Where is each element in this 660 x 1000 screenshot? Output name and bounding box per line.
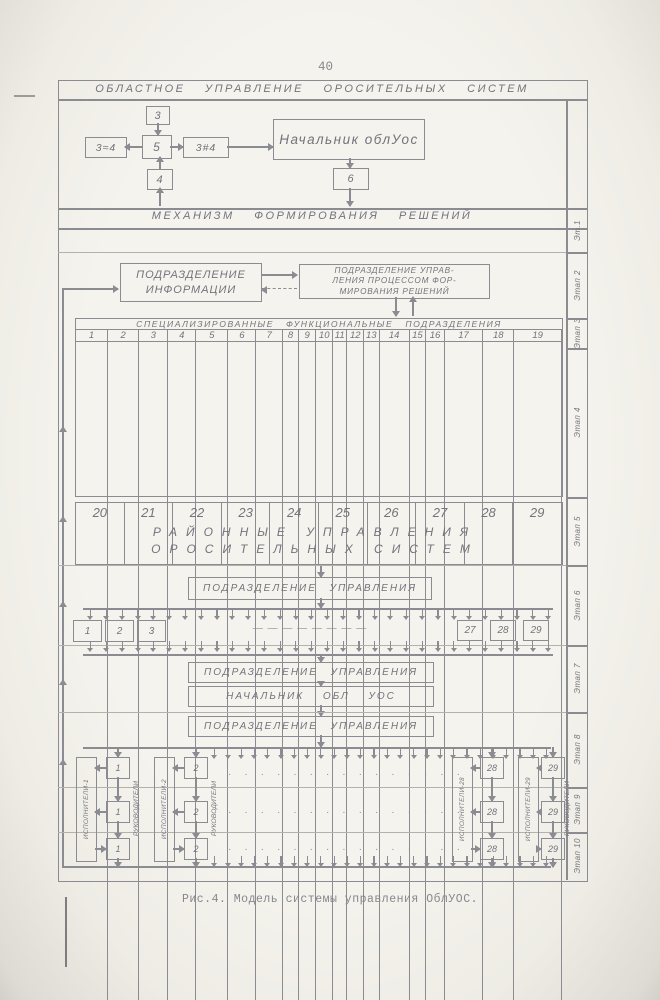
rail-arrow [241, 856, 242, 866]
rail-stage6-bottom [83, 654, 553, 656]
rail-arrow [358, 609, 359, 619]
arrow-leader-chain [552, 821, 554, 838]
rail-arrow [153, 609, 154, 619]
rail-arrow [267, 748, 268, 758]
rail-arrow [169, 609, 170, 619]
rail-arrow [90, 609, 91, 619]
rail-arrow [232, 609, 233, 619]
leader-box-2: 2 [184, 757, 208, 779]
spec-units-table: СПЕЦИАЛИЗИРОВАННЫЕ ФУНКЦИОНАЛЬНЫЕ ПОДРАЗ… [75, 318, 563, 497]
stage-segment-2: Этап 2 [566, 252, 588, 318]
stage-segment-7: Этап 7 [566, 645, 588, 712]
stage-segment-5: Этап 5 [566, 497, 588, 565]
leaders-label: РУКОВОДИТЕЛИ [209, 757, 219, 860]
leaders-label-text: РУКОВОДИТЕЛИ [133, 781, 140, 836]
arrow-mechanism-to-4 [159, 188, 161, 206]
rail-arrow [267, 856, 268, 866]
stage-strip-divider [566, 252, 588, 254]
rail-arrow [201, 609, 202, 619]
rail-arrow [406, 609, 407, 619]
leader-box-28: 28 [480, 801, 504, 823]
arrow-chief-to-6 [349, 158, 351, 168]
rail-arrow [400, 856, 401, 866]
leader-box-28: 28 [480, 757, 504, 779]
scanned-page: 40 ОБЛАСТНОЕ УПРАВЛЕНИЕ ОРОСИТЕЛЬНЫХ СИС… [0, 0, 660, 1000]
rail-arrow [413, 748, 414, 758]
rail-arrow [374, 641, 375, 651]
executors-box-label: ИСПОЛНИТЕЛИ-29 [525, 777, 532, 841]
rail-arrow [390, 609, 391, 619]
rail-arrow [422, 641, 423, 651]
information-unit-box: ПОДРАЗДЕЛЕНИЕ ИНФОРМАЦИИ [120, 263, 262, 302]
arrow-leader-to-executors [95, 767, 106, 769]
spec-col-number: 19 [514, 330, 562, 341]
stage-label-5: Этап 5 [573, 516, 582, 547]
ellipsis-dots: ··············· [228, 807, 446, 818]
scan-artifact-ink-line [65, 897, 67, 967]
spec-col-number: 6 [228, 330, 256, 341]
feedback-arrowhead [62, 760, 64, 769]
rail-arrow [311, 609, 312, 619]
rail-arrow [307, 748, 308, 758]
arrow-district-to-control6 [320, 565, 322, 577]
control-unit-box-stage8: ПОДРАЗДЕЛЕНИЕ УПРАВЛЕНИЯ [188, 716, 434, 737]
leader-box-1: 1 [106, 838, 130, 860]
rail-arrow [295, 641, 296, 651]
rail-arrow [334, 748, 335, 758]
arrow-chief-to-control8 [320, 705, 322, 716]
control-unit-box-stage6: ПОДРАЗДЕЛЕНИЕ УПРАВЛЕНИЯ [188, 577, 432, 600]
spec-col-number: 3 [139, 330, 168, 341]
rail-arrow [532, 641, 533, 651]
rail-arrow [248, 641, 249, 651]
arrow-info-to-process [262, 274, 297, 276]
rail-arrow [169, 641, 170, 651]
arrow-executors-to-leader [95, 848, 106, 850]
rail-executors-top [83, 747, 551, 749]
rail-arrow [532, 609, 533, 619]
unit-box-1: 1 [73, 620, 102, 642]
spec-col-number: 5 [196, 330, 228, 341]
stage-strip-divider [566, 645, 588, 647]
stage-label-9: Этап 9 [573, 794, 582, 825]
spec-col-number: 1 [76, 330, 108, 341]
ellipsis-dots: ··············· [228, 844, 446, 855]
arrow-3noteq4-to-chief [227, 146, 273, 148]
rail-arrow [185, 641, 186, 651]
arrow-executors-to-leader [173, 848, 184, 850]
stage-strip-divider [566, 348, 588, 350]
stage-boundary-line [58, 252, 566, 253]
arrow-leader-to-executors [537, 767, 541, 769]
district-line1: РАЙОННЫЕ УПРАВЛЕНИЯ [80, 525, 550, 539]
arrow-leader-to-executors [537, 811, 541, 813]
spec-col-number: 18 [483, 330, 514, 341]
executors-box-label: ИСПОЛНИТЕЛИ-1 [83, 779, 90, 839]
arrow-leader-to-rail [552, 858, 554, 867]
rail-arrow [254, 856, 255, 866]
spec-col-number: 10 [316, 330, 333, 341]
leader-box-2: 2 [184, 801, 208, 823]
arrow-leader-chain [195, 777, 197, 801]
leaders-label-text: РУКОВОДИТЕЛИ [211, 781, 218, 836]
rail-arrow [90, 641, 91, 651]
rail-arrow [360, 748, 361, 758]
rail-arrow [137, 609, 138, 619]
scan-artifact-dash [14, 95, 35, 97]
unit-box-29: 29 [523, 620, 549, 641]
arrow-5-to-3approx4 [125, 146, 142, 148]
spec-col-number: 13 [364, 330, 380, 341]
rail-arrow [390, 641, 391, 651]
rail-arrow [227, 856, 228, 866]
rail-arrow [311, 641, 312, 651]
header-band-underline [58, 99, 588, 101]
feedback-arrowhead [62, 427, 64, 436]
arrow-4-to-5 [159, 157, 161, 169]
arrow-leader-to-executors [173, 811, 184, 813]
unit-box-2: 2 [105, 620, 134, 642]
rail-arrow [295, 609, 296, 619]
rail-arrow [264, 609, 265, 619]
rail-arrow [320, 856, 321, 866]
process-control-unit-box: ПОДРАЗДЕЛЕНИЕ УПРАВ- ЛЕНИЯ ПРОЦЕССОМ ФОР… [299, 264, 490, 299]
process-unit-line1: ПОДРАЗДЕЛЕНИЕ УПРАВ- [335, 266, 455, 276]
arrow-spec-to-process [412, 297, 414, 316]
arrow-feedback-to-info [62, 288, 118, 290]
arrow-leader-chain [195, 821, 197, 838]
rail-arrow [334, 856, 335, 866]
ellipsis-dots: ··············· [228, 769, 446, 780]
feedback-arrowhead [62, 517, 64, 526]
rail-arrow [440, 748, 441, 758]
information-unit-line1: ПОДРАЗДЕЛЕНИЕ [136, 268, 246, 282]
arrow-rail-to-control7 [320, 654, 322, 662]
spec-col-number: 11 [333, 330, 347, 341]
rail-arrow [216, 641, 217, 651]
rail-arrow [440, 856, 441, 866]
rail-arrow [280, 856, 281, 866]
rail-arrow [307, 856, 308, 866]
rail-arrow [343, 641, 344, 651]
spec-col-number: 17 [445, 330, 483, 341]
flow-box-3-noteq-4: 3#4 [183, 137, 229, 158]
stage-strip-divider [566, 565, 588, 567]
spec-col-number: 7 [256, 330, 283, 341]
rail-arrow [400, 748, 401, 758]
spec-col-number: 14 [380, 330, 410, 341]
rail-arrow [280, 609, 281, 619]
arrow-6-to-mechanism [349, 188, 351, 206]
rail-arrow [264, 641, 265, 651]
rail-arrow [294, 856, 295, 866]
rail-arrow [347, 748, 348, 758]
header-band-title: ОБЛАСТНОЕ УПРАВЛЕНИЕ ОРОСИТЕЛЬНЫХ СИСТЕМ [58, 83, 566, 95]
rail-arrow [227, 748, 228, 758]
mechanism-band-title: МЕХАНИЗМ ФОРМИРОВАНИЯ РЕШЕНИЙ [58, 210, 566, 222]
stage-boundary-line [58, 565, 566, 566]
stage-segment-1: Эт.1 [566, 208, 588, 252]
arrow-leader-to-rail [195, 858, 197, 867]
rail-arrow [387, 748, 388, 758]
arrow-rail-to-leader [117, 747, 119, 757]
rail-arrow [485, 609, 486, 619]
arrow-rail-to-leader [552, 747, 554, 757]
leaders-label: РУКОВОДИТЕЛИ [562, 757, 572, 860]
rail-arrow [501, 609, 502, 619]
stage-label-2: Этап 2 [573, 270, 582, 301]
page-number: 40 [318, 60, 333, 74]
arrow-rail-to-leader [195, 747, 197, 757]
rail-arrow [426, 856, 427, 866]
spec-col-number: 4 [168, 330, 196, 341]
rail-arrow [122, 609, 123, 619]
rail-arrow [122, 641, 123, 651]
executors-box-label: ИСПОЛНИТЕЛИ-2 [161, 779, 168, 839]
unit-box-27: 27 [457, 620, 483, 641]
district-line2: ОРОСИТЕЛЬНЫХ СИСТЕМ [80, 542, 550, 556]
stage-label-10: Этап 10 [573, 838, 582, 874]
leader-box-1: 1 [106, 757, 130, 779]
arrow-leader-chain [491, 777, 493, 801]
rail-arrow [548, 641, 549, 651]
rail-arrow [106, 609, 107, 619]
rail-arrow [280, 748, 281, 758]
arrow-leader-to-executors [173, 767, 184, 769]
arrow-control8-to-executors [320, 735, 322, 747]
mechanism-band-bottom [58, 228, 588, 230]
arrow-5-to-3noteq4 [170, 146, 183, 148]
rail-arrow [254, 748, 255, 758]
rail-arrow [106, 641, 107, 651]
process-unit-line2: ЛЕНИЯ ПРОЦЕССОМ ФОР- [332, 276, 456, 286]
leaders-label-text: РУКОВОДИТЕЛИ [564, 781, 571, 836]
spec-col-number: 9 [299, 330, 317, 341]
rail-arrow [387, 856, 388, 866]
stage-label-7: Этап 7 [573, 663, 582, 694]
spec-col-number: 12 [347, 330, 364, 341]
rail-arrow [485, 641, 486, 651]
stage-label-4: Этап 4 [573, 407, 582, 438]
stage-boundary-line [58, 712, 566, 713]
control-unit-box-stage7: ПОДРАЗДЕЛЕНИЕ УПРАВЛЕНИЯ [188, 662, 434, 683]
dashed-arrow-process-to-info [262, 288, 297, 289]
stage-label-1: Эт.1 [573, 220, 582, 241]
process-unit-line3: МИРОВАНИЯ РЕШЕНИЙ [340, 287, 450, 297]
rail-arrow [185, 609, 186, 619]
arrow-leader-chain [491, 821, 493, 838]
leader-box-28: 28 [480, 838, 504, 860]
arrow-control6-to-rail [320, 598, 322, 608]
rail-arrow [453, 641, 454, 651]
rail-arrow [327, 641, 328, 651]
rail-arrow [201, 641, 202, 651]
rail-arrow [241, 748, 242, 758]
rail-arrow [320, 748, 321, 758]
figure-caption: Рис.4. Модель системы управления ОблУОС. [0, 893, 660, 906]
stage-segment-4: Этап 4 [566, 348, 588, 497]
rail-arrow [406, 641, 407, 651]
rail-arrow [413, 856, 414, 866]
arrow-3-to-5 [157, 123, 159, 135]
arrow-leader-chain [117, 777, 119, 801]
stage6-ellipsis-dashes: — — — — — — — — [170, 623, 450, 634]
feedback-line [62, 288, 64, 868]
arrow-process-to-spec [395, 297, 397, 316]
arrow-leader-chain [552, 777, 554, 801]
unit-box-3: 3 [137, 620, 166, 642]
rail-arrow [548, 609, 549, 619]
information-unit-line2: ИНФОРМАЦИИ [146, 283, 237, 297]
spec-col-number: 16 [426, 330, 445, 341]
rail-arrow [137, 641, 138, 651]
stage-segment-3: Этап 3 [566, 318, 588, 348]
unit-box-28: 28 [490, 620, 516, 641]
rail-arrow [294, 748, 295, 758]
rail-arrow [453, 609, 454, 619]
spec-col-number: 2 [108, 330, 139, 341]
rail-arrow [360, 856, 361, 866]
chief-box-stage7: НАЧАЛЬНИК ОБЛ УОС [188, 686, 434, 707]
rail-arrow [373, 748, 374, 758]
rail-arrow [506, 856, 507, 866]
rail-arrow [506, 748, 507, 758]
arrow-executors-to-leader [537, 848, 541, 850]
arrow-leader-chain [117, 821, 119, 838]
stage-label-6: Этап 6 [573, 590, 582, 621]
feedback-arrowhead [62, 680, 64, 689]
leader-box-1: 1 [106, 801, 130, 823]
rail-arrow [373, 856, 374, 866]
spec-col-number: 8 [283, 330, 299, 341]
spec-table-title: СПЕЦИАЛИЗИРОВАННЫЕ ФУНКЦИОНАЛЬНЫЕ ПОДРАЗ… [76, 319, 562, 330]
rail-arrow [469, 609, 470, 619]
rail-arrow [280, 641, 281, 651]
rail-arrow [516, 609, 517, 619]
feedback-arrowhead [62, 602, 64, 611]
rail-arrow [327, 609, 328, 619]
arrow-leader-to-executors [95, 811, 106, 813]
rail-arrow [437, 641, 438, 651]
leader-box-2: 2 [184, 838, 208, 860]
rail-arrow [501, 641, 502, 651]
rail-arrow [232, 641, 233, 651]
rail-arrow [426, 748, 427, 758]
rail-arrow [469, 641, 470, 651]
stage-strip-divider [566, 497, 588, 499]
stage-label-8: Этап 8 [573, 734, 582, 765]
rail-arrow [343, 609, 344, 619]
rail-arrow [153, 641, 154, 651]
rail-arrow [347, 856, 348, 866]
flow-box-3-approx-4: 3≈4 [85, 137, 127, 158]
rail-arrow [374, 609, 375, 619]
rail-arrow [516, 641, 517, 651]
rail-arrow [358, 641, 359, 651]
chief-obluos-box: Начальник облУос [273, 119, 425, 160]
stage-segment-6: Этап 6 [566, 565, 588, 645]
stage-label-3: Этап 3 [573, 318, 582, 349]
rail-arrow [422, 609, 423, 619]
spec-table-number-row: 12345678910111213141516171819 [76, 330, 562, 342]
arrow-leader-to-rail [117, 858, 119, 867]
spec-col-number: 15 [410, 330, 427, 341]
stage-strip-divider [566, 318, 588, 320]
stage-strip-divider [566, 712, 588, 714]
rail-arrow [216, 609, 217, 619]
leaders-label: РУКОВОДИТЕЛИ [131, 757, 141, 860]
arrow-leader-to-rail [491, 858, 493, 867]
flow-box-6: 6 [333, 168, 369, 190]
rail-arrow [248, 609, 249, 619]
arrow-rail-to-leader [491, 747, 493, 757]
rail-arrow [437, 609, 438, 619]
